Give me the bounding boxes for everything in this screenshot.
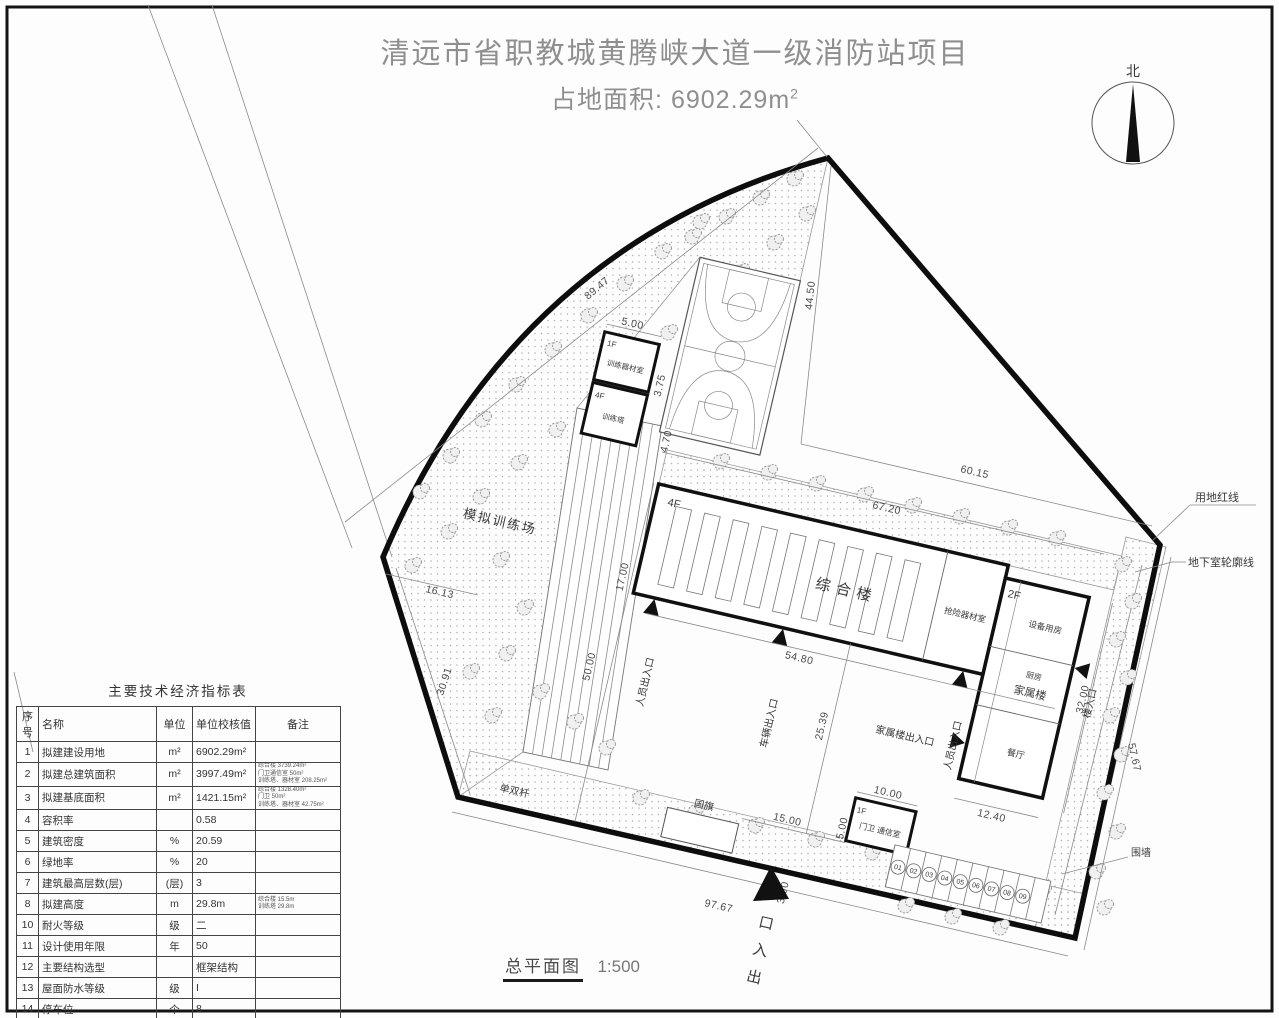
indicator-table: 主要技术经济指标表 序号 名称 单位 单位校核值 备注 1拟建建设用地m²690… (16, 680, 340, 1018)
row-unit: 级 (157, 978, 193, 999)
row-name: 停车位 (39, 999, 157, 1018)
row-name: 耐火等级 (39, 915, 157, 936)
row-no: 5 (17, 831, 39, 852)
row-no: 1 (17, 742, 39, 763)
dim-97.67: 97.67 (703, 897, 734, 915)
row-name: 拟建基底面积 (39, 786, 157, 810)
row-value: 3997.49m² (193, 763, 256, 787)
row-name: 拟建总建筑面积 (39, 763, 157, 787)
site-plan-sheet: 1F 训练器材室 4F 训练塔 4F 综合楼 抢险器材室 (0, 0, 1279, 1018)
row-no: 4 (17, 810, 39, 831)
row-name: 建筑最高层数(层) (39, 873, 157, 894)
row-unit: (层) (157, 873, 193, 894)
row-unit: % (157, 852, 193, 873)
row-value: 29.8m (193, 894, 256, 915)
row-note (256, 915, 341, 936)
indicator-table-title: 主要技术经济指标表 (16, 680, 340, 700)
row-name: 拟建建设用地 (39, 742, 157, 763)
table-row: 8拟建高度m29.8m综合楼 15.5m 训练塔 29.8m (17, 894, 341, 915)
person-entrance-left-label: 人员出入口 (633, 656, 657, 708)
site-area-sup: 2 (790, 86, 799, 102)
row-value: 框架结构 (193, 957, 256, 978)
row-note: 综合楼 1328.40m² 门卫 50m² 训练塔、器材室 42.75m² (256, 786, 341, 810)
row-note (256, 936, 341, 957)
north-compass: 北 (1092, 63, 1174, 164)
row-note (256, 831, 341, 852)
site-area-value: 6902.29m (671, 86, 790, 114)
drawing-scale: 1:500 (597, 957, 640, 976)
tree-icon (661, 325, 678, 341)
row-value: 6902.29m² (193, 742, 256, 763)
dim-57.67: 57.67 (1125, 742, 1143, 773)
row-note (256, 999, 341, 1018)
row-unit: 级 (157, 915, 193, 936)
table-row: 12主要结构选型框架结构 (17, 957, 341, 978)
row-note (256, 742, 341, 763)
table-row: 13屋面防水等级级I (17, 978, 341, 999)
title-block: 清远市省职教城黄腾峡大道一级消防站项目 占地面积: 6902.29m2 (330, 30, 1020, 116)
north-label: 北 (1126, 63, 1140, 79)
table-row: 3拟建基底面积m²1421.15m²综合楼 1328.40m² 门卫 50m² … (17, 786, 341, 810)
row-note: 综合楼 3739.24m² 门卫通信室 50m² 训练塔、器材室 208.25m… (256, 763, 341, 787)
tree-icon (1097, 900, 1114, 916)
row-no: 12 (17, 957, 39, 978)
family-exit-label: 家属楼出入口 (874, 723, 935, 749)
row-note (256, 810, 341, 831)
drawing-name: 总平面图 (503, 952, 583, 982)
table-row: 4容积率0.58 (17, 810, 341, 831)
table-row: 11设计使用年限年50 (17, 936, 341, 957)
row-note: 综合楼 15.5m 训练塔 29.8m (256, 894, 341, 915)
drawing-title: 总平面图 1:500 (503, 952, 640, 982)
row-name: 主要结构选型 (39, 957, 157, 978)
row-value: 50 (193, 936, 256, 957)
site-area-label: 占地面积: (551, 86, 663, 114)
row-no: 6 (17, 852, 39, 873)
row-no: 2 (17, 763, 39, 787)
row-no: 13 (17, 978, 39, 999)
road-lines (14, 5, 392, 752)
row-value: I (193, 978, 256, 999)
row-name: 设计使用年限 (39, 936, 157, 957)
row-unit: m² (157, 742, 193, 763)
col-unit: 单位 (157, 707, 193, 742)
row-value: 20.59 (193, 831, 256, 852)
main-gate-char-mid: 入 (751, 941, 769, 961)
row-value: 8 (193, 999, 256, 1018)
row-note (256, 852, 341, 873)
row-name: 绿地率 (39, 852, 157, 873)
dim-3.75: 3.75 (652, 373, 669, 398)
row-no: 7 (17, 873, 39, 894)
table-row: 6绿地率%20 (17, 852, 341, 873)
col-value: 单位校核值 (193, 707, 256, 742)
col-note: 备注 (256, 707, 341, 742)
row-name: 建筑密度 (39, 831, 157, 852)
wall-label: 围墙 (1131, 846, 1151, 859)
row-unit (157, 810, 193, 831)
row-unit: m² (157, 786, 193, 810)
row-note (256, 978, 341, 999)
row-name: 屋面防水等级 (39, 978, 157, 999)
row-value: 1421.15m² (193, 786, 256, 810)
row-name: 拟建高度 (39, 894, 157, 915)
table-row: 1拟建建设用地m²6902.29m² (17, 742, 341, 763)
row-value: 0.58 (193, 810, 256, 831)
row-value: 二 (193, 915, 256, 936)
basement-line-label: 地下室轮廓线 (1188, 555, 1254, 569)
table-row: 14停车位个8 (17, 999, 341, 1018)
vehicle-entrance-label: 车辆出入口 (757, 697, 781, 749)
project-title: 清远市省职教城黄腾峡大道一级消防站项目 (330, 30, 1020, 72)
row-unit: m² (157, 763, 193, 787)
row-no: 11 (17, 936, 39, 957)
table-row: 5建筑密度%20.59 (17, 831, 341, 852)
main-gate-char-bottom: 出 (745, 968, 763, 988)
table-header-row: 序号 名称 单位 单位校核值 备注 (17, 707, 341, 742)
main-gate-char-top: 口 (757, 914, 775, 934)
col-no: 序号 (17, 707, 39, 742)
site-area-title: 占地面积: 6902.29m2 (330, 80, 1020, 116)
row-no: 3 (17, 786, 39, 810)
table-row: 7建筑最高层数(层)(层)3 (17, 873, 341, 894)
red-line-label: 用地红线 (1195, 490, 1239, 504)
row-unit (157, 957, 193, 978)
table-row: 10耐火等级级二 (17, 915, 341, 936)
basketball-court (660, 257, 801, 455)
row-note (256, 957, 341, 978)
row-no: 10 (17, 915, 39, 936)
row-unit: m (157, 894, 193, 915)
row-value: 3 (193, 873, 256, 894)
row-unit: % (157, 831, 193, 852)
dim-60.15: 60.15 (959, 463, 990, 481)
row-unit: 个 (157, 999, 193, 1018)
row-value: 20 (193, 852, 256, 873)
col-name: 名称 (39, 707, 157, 742)
row-no: 14 (17, 999, 39, 1018)
table-row: 2拟建总建筑面积m²3997.49m²综合楼 3739.24m² 门卫通信室 5… (17, 763, 341, 787)
compass-needle (1126, 84, 1140, 162)
main-gate-label: 口 入 出 (745, 914, 775, 988)
row-no: 8 (17, 894, 39, 915)
row-note (256, 873, 341, 894)
row-unit: 年 (157, 936, 193, 957)
row-name: 容积率 (39, 810, 157, 831)
